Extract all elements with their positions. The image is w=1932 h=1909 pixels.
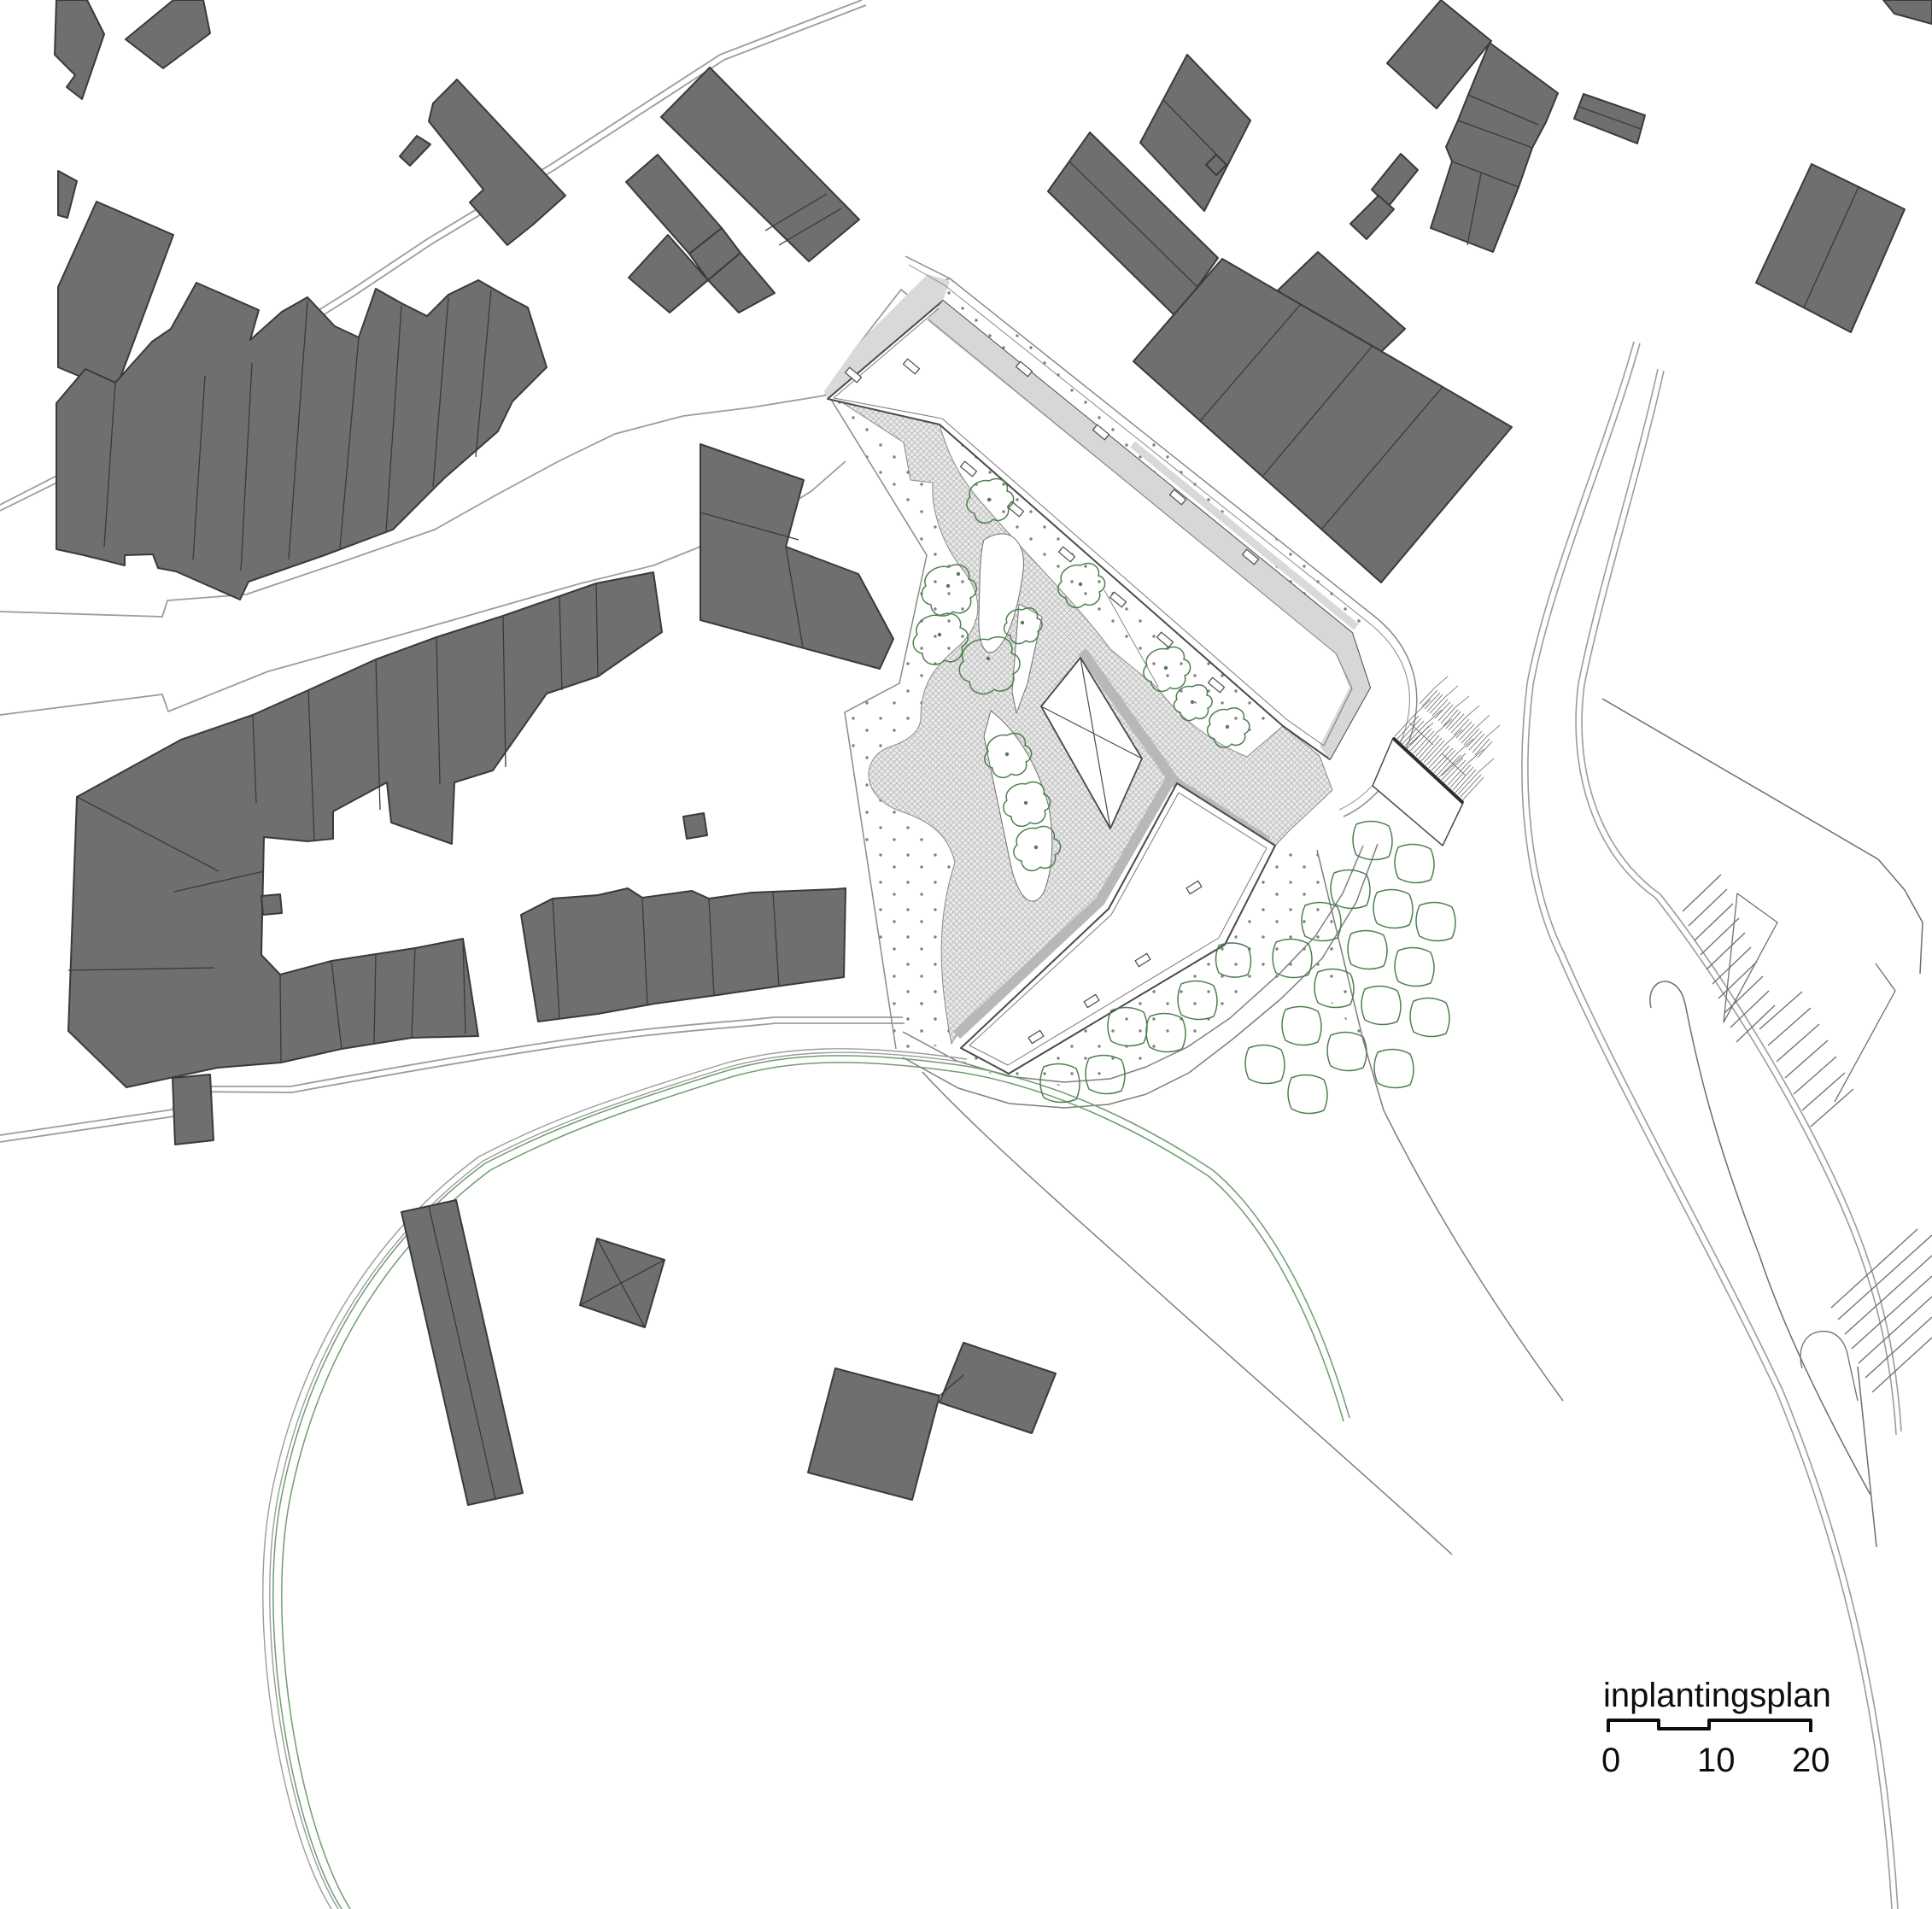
svg-text:20: 20 [1792, 1742, 1830, 1779]
svg-text:0: 0 [1601, 1742, 1620, 1779]
svg-text:10: 10 [1697, 1742, 1736, 1779]
svg-text:inplantingsplan: inplantingsplan [1603, 1677, 1831, 1714]
